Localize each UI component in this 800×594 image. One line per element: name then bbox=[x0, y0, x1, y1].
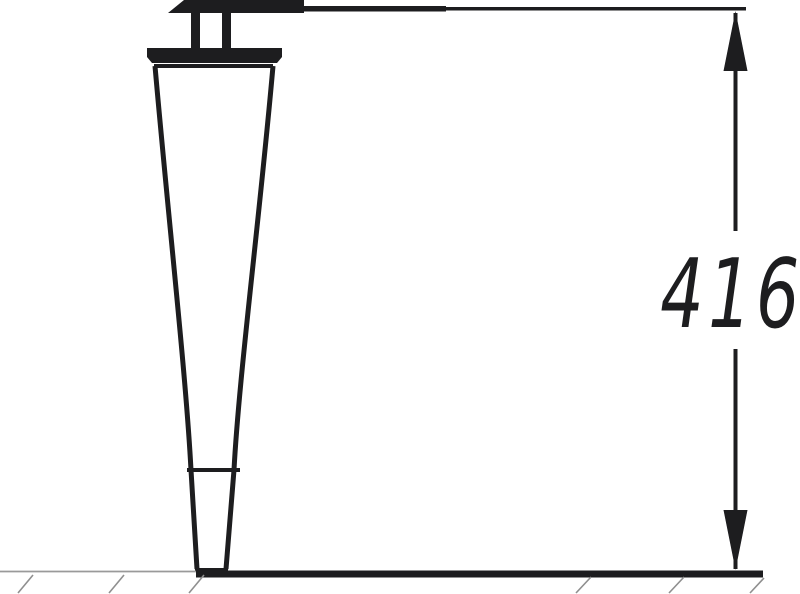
ground-hatch-mark bbox=[576, 577, 591, 593]
ground-hatch-mark bbox=[109, 575, 124, 593]
mounting-plate bbox=[147, 48, 282, 63]
ground-hatch-mark bbox=[669, 577, 684, 593]
ground-hatch-mark bbox=[750, 578, 764, 593]
tabletop-edge bbox=[168, 0, 304, 13]
ground-hatch-mark bbox=[189, 575, 204, 593]
technical-drawing-canvas: 416 bbox=[0, 0, 800, 594]
ground-hatch-mark bbox=[18, 575, 33, 593]
tabletop-edge-line bbox=[303, 6, 746, 12]
leg-right-outline bbox=[226, 66, 273, 569]
bolt-left-outline bbox=[191, 7, 200, 48]
dimension-label: 416 bbox=[660, 239, 800, 350]
furniture-leg-drawing: 416 bbox=[0, 0, 800, 594]
bolt-right-outline bbox=[222, 7, 231, 48]
arrow-up-icon bbox=[724, 11, 748, 71]
leg-left-outline bbox=[155, 66, 197, 569]
arrow-down-icon bbox=[724, 510, 748, 570]
